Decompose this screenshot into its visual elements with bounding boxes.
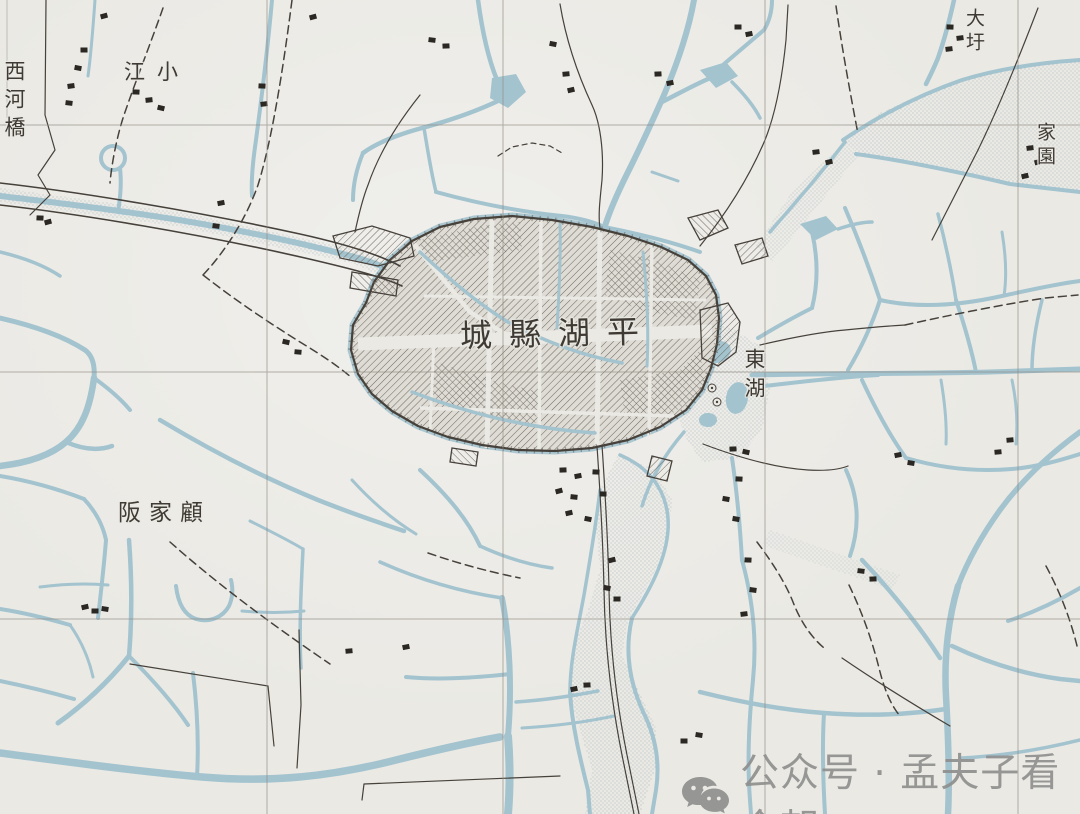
map-artwork: [0, 0, 1080, 814]
label-xihe-bridge: 西河橋: [3, 60, 24, 144]
label-dawei: 大圩: [964, 8, 983, 56]
watermark-text: 公众号 · 孟夫子看今朝: [740, 742, 1080, 814]
wechat-icon: [680, 775, 732, 814]
label-jiayuan: 家園: [1035, 122, 1054, 170]
watermark: 公众号 · 孟夫子看今朝: [680, 742, 1080, 814]
label-pinghu-city: 城縣湖平: [460, 315, 657, 352]
label-donghu: 東湖: [743, 348, 764, 406]
label-gujiaban: 阪家顧: [118, 502, 211, 525]
map-canvas: 西河橋 江小 大圩 家園 城縣湖平 東湖 阪家顧 公众号 · 孟夫子看今朝: [0, 0, 1080, 814]
label-xiaojiang: 江小: [124, 62, 190, 83]
